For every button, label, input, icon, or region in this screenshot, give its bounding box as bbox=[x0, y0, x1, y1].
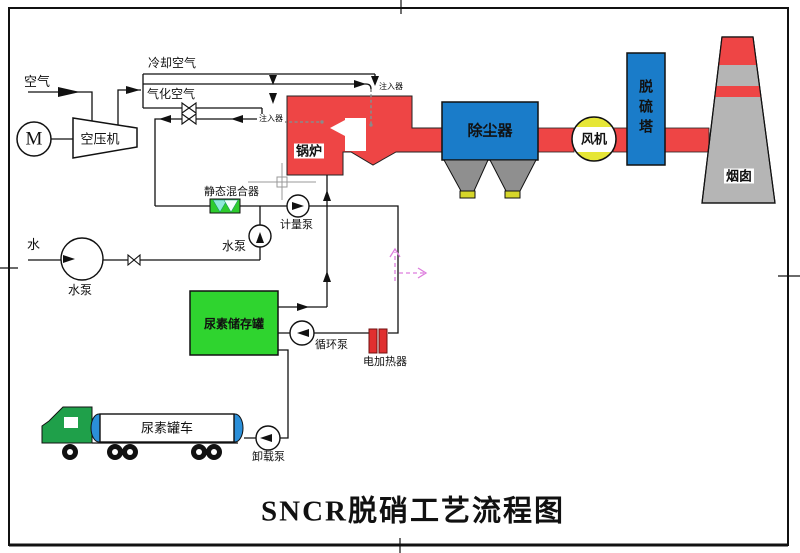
dust-collector-label: 除尘器 bbox=[467, 124, 512, 139]
air-label: 空气 bbox=[24, 75, 50, 88]
electric-heater bbox=[369, 329, 387, 353]
valves bbox=[128, 103, 196, 265]
hopper-left bbox=[444, 160, 488, 191]
water-label: 水 bbox=[27, 238, 40, 251]
mixing-air-valve bbox=[182, 114, 196, 124]
lance-tip-left bbox=[320, 120, 323, 123]
chimney-band-mid bbox=[700, 86, 780, 97]
flue-duct bbox=[538, 128, 709, 152]
cooling-air-label: 冷却空气 bbox=[148, 57, 196, 69]
hopper-right-outlet bbox=[505, 191, 520, 198]
injector-left-label: 注入器 bbox=[257, 114, 285, 124]
unloading-pump-label: 卸载泵 bbox=[252, 452, 285, 463]
truck-wheels bbox=[62, 444, 222, 460]
circulation-pump-label: 循环泵 bbox=[315, 340, 348, 351]
desulfurization-tower-label: 脱硫塔 bbox=[639, 79, 653, 139]
hopper-left-outlet bbox=[460, 191, 475, 198]
compressor-label: 空压机 bbox=[80, 133, 119, 146]
electric-heater-label: 电加热器 bbox=[363, 357, 407, 368]
boiler-notch bbox=[345, 118, 366, 151]
motor-label: M bbox=[26, 130, 43, 149]
fan-label: 风机 bbox=[581, 133, 607, 146]
chimney-label: 烟囱 bbox=[724, 169, 754, 184]
urea-storage-tank-label: 尿素储存罐 bbox=[204, 318, 264, 330]
hopper-right bbox=[490, 160, 536, 191]
metering-pump-label: 计量泵 bbox=[280, 220, 313, 231]
gasification-air-valve bbox=[182, 103, 196, 113]
truck-window bbox=[64, 417, 78, 428]
water-valve bbox=[128, 255, 140, 265]
static-mixer-label: 静态混合器 bbox=[204, 187, 259, 198]
water-feed-pump-label: 水泵 bbox=[222, 240, 246, 252]
urea-tank-truck-label: 尿素罐车 bbox=[141, 422, 193, 435]
chimney-band-top bbox=[700, 37, 780, 65]
boiler-shape bbox=[287, 96, 442, 175]
static-mixer bbox=[210, 199, 240, 213]
injector-top-label: 注入器 bbox=[379, 83, 403, 91]
diagram-title: SNCR脱硝工艺流程图 bbox=[261, 498, 565, 527]
process-flow-diagram: 空气 M 空压机 冷却空气 气化空气 注入器 注入器 锅炉 除尘器 风机 脱硫塔… bbox=[0, 0, 800, 553]
dust-collector bbox=[442, 102, 538, 198]
cad-markup-arrows bbox=[390, 249, 426, 281]
air-flow-arrow bbox=[58, 87, 80, 97]
lance-tip-top bbox=[369, 123, 372, 126]
boiler-label: 锅炉 bbox=[294, 144, 324, 159]
water-pump-label: 水泵 bbox=[68, 284, 92, 296]
gasification-air-label: 气化空气 bbox=[147, 88, 195, 100]
